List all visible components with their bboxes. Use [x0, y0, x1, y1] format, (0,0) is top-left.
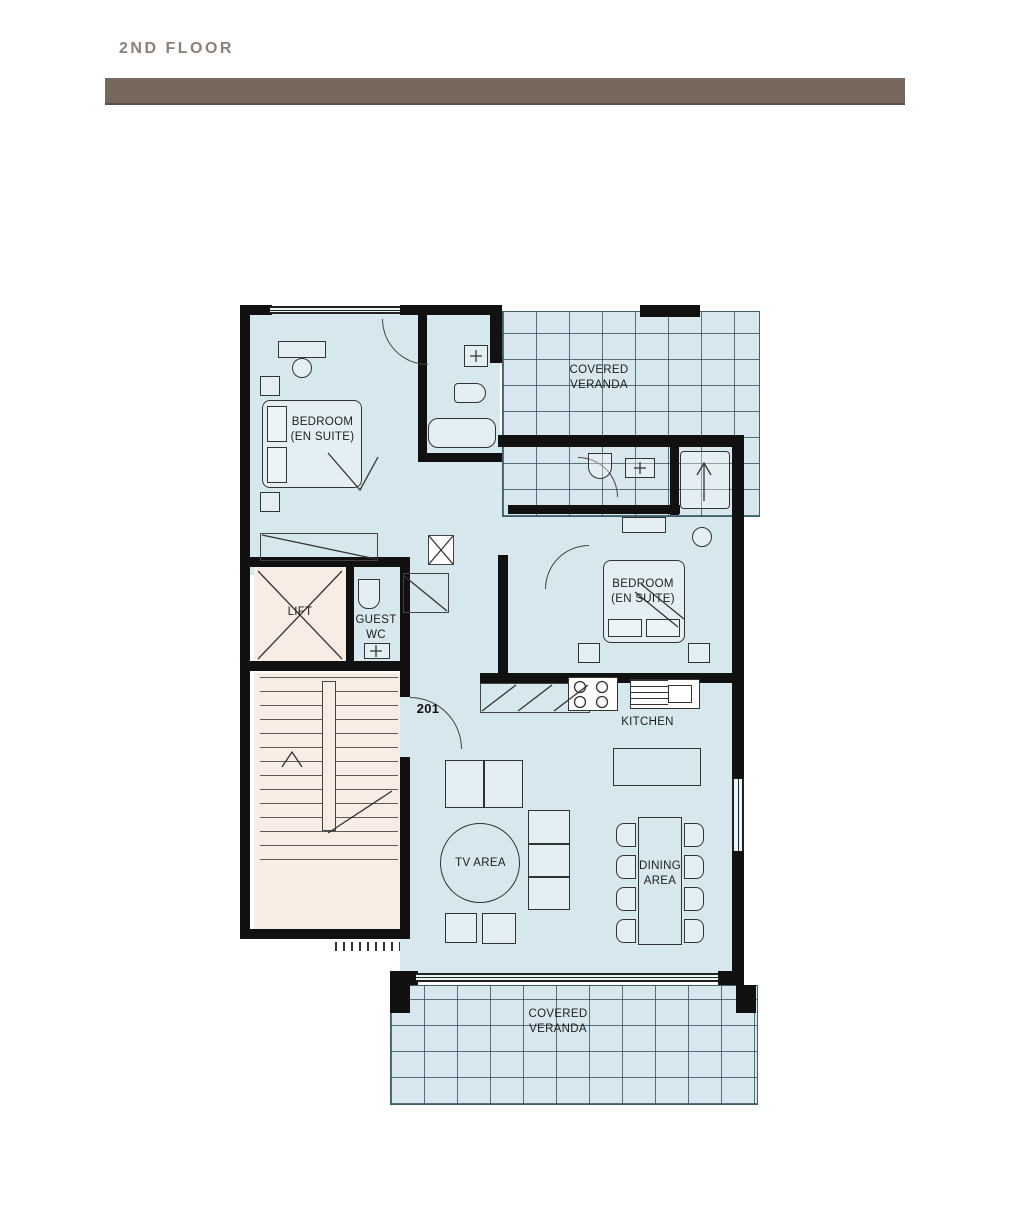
dining-chair-r1	[684, 823, 704, 847]
label-dining-line1: DINING	[628, 859, 692, 874]
closet-hall	[403, 573, 449, 613]
label-bedroom1-line2: (EN SUITE)	[265, 430, 380, 445]
wall-veranda-top-block	[640, 305, 700, 317]
wall-outer-right-mid	[732, 683, 744, 779]
nightstand-bedroom1-b	[260, 492, 280, 512]
label-veranda-top-line1: COVERED	[540, 363, 658, 378]
toilet-bath2	[588, 453, 612, 479]
nightstand-bedroom2-a	[578, 643, 600, 663]
page: 2ND FLOOR	[0, 0, 1012, 1231]
label-guest-wc: GUEST WC	[340, 613, 412, 643]
nightstand-bedroom2-b	[688, 643, 710, 663]
sink-bath2	[625, 458, 655, 478]
stair-dimension-hatch	[335, 942, 400, 951]
sink-guest-wc	[364, 643, 390, 659]
ottoman-b	[482, 913, 516, 944]
wall-stair-bottom	[240, 929, 410, 939]
label-bedroom1: BEDROOM (EN SUITE)	[265, 415, 380, 445]
dining-chair-l4	[616, 919, 636, 943]
toilet-guest-wc	[358, 579, 380, 609]
wall-hall-bedroom2-divider	[498, 555, 508, 683]
wall-lift-bottom	[250, 661, 400, 671]
label-lift: LIFT	[270, 605, 330, 620]
wall-bath1-veranda-column	[490, 313, 502, 363]
label-veranda-top: COVERED VERANDA	[540, 363, 658, 393]
pillow-bedroom2-b	[646, 619, 680, 637]
header-divider-bar	[105, 78, 905, 105]
sofa-cushion-line-a	[529, 843, 569, 845]
wardrobe-bedroom1	[260, 533, 378, 561]
label-unit-number: 201	[406, 701, 450, 718]
window-top	[270, 306, 402, 314]
wall-outer-top	[240, 305, 272, 315]
desk-bedroom1	[278, 341, 326, 358]
shower-bath2	[680, 451, 730, 509]
wall-bath2-bottom	[508, 505, 680, 514]
stove	[568, 677, 618, 711]
wall-living-bottom-left	[390, 971, 418, 985]
chair-bedroom2	[692, 527, 712, 547]
label-kitchen: KITCHEN	[600, 715, 695, 730]
wall-bath1-bottom	[418, 453, 502, 462]
wall-shower-divider	[670, 445, 679, 515]
nightstand-bedroom1-a	[260, 376, 280, 396]
wall-veranda-bottom-right-pier	[736, 985, 756, 1013]
wall-outer-right-upper	[732, 435, 744, 685]
chair-bedroom1	[292, 358, 312, 378]
kitchen-sink-basin	[668, 685, 692, 703]
sofa-two-seat-cushion-line	[483, 761, 485, 807]
label-guest-wc-line2: WC	[340, 628, 412, 643]
floor-plan: BEDROOM (EN SUITE) BEDROOM (EN SUITE) CO…	[240, 305, 762, 1105]
stair-divider	[322, 681, 336, 831]
dining-chair-r4	[684, 919, 704, 943]
label-veranda-top-line2: VERANDA	[540, 378, 658, 393]
label-tv-area: TV AREA	[438, 856, 523, 871]
label-veranda-bottom-line1: COVERED	[498, 1007, 618, 1022]
toilet-bath1	[454, 383, 486, 403]
label-veranda-bottom: COVERED VERANDA	[498, 1007, 618, 1037]
page-title: 2ND FLOOR	[119, 40, 234, 58]
label-veranda-bottom-line2: VERANDA	[498, 1022, 618, 1037]
label-dining-area: DINING AREA	[628, 859, 692, 889]
label-dining-line2: AREA	[628, 874, 692, 889]
bathtub-bath1	[428, 418, 496, 448]
wall-outer-right-lower	[732, 851, 744, 985]
wall-outer-top-2	[400, 305, 502, 315]
window-living-south	[416, 973, 720, 982]
wall-stair-right-lower	[400, 757, 410, 939]
desk-bedroom2	[622, 517, 666, 533]
sink-bath1	[464, 345, 488, 367]
label-bedroom2-line1: BEDROOM	[588, 577, 698, 592]
label-bedroom1-line1: BEDROOM	[265, 415, 380, 430]
veranda-bottom-floor	[390, 985, 758, 1105]
dining-chair-l1	[616, 823, 636, 847]
ottoman-a	[445, 913, 477, 943]
wall-bedroom2-top	[498, 435, 744, 447]
sofa-cushion-line-b	[529, 876, 569, 878]
label-guest-wc-line1: GUEST	[340, 613, 412, 628]
wall-outer-left	[240, 305, 250, 939]
pillow-bedroom2-a	[608, 619, 642, 637]
sofa-three-seat	[528, 810, 570, 910]
dining-chair-l3	[616, 887, 636, 911]
pillow-bedroom1-b	[267, 447, 287, 483]
label-bedroom2: BEDROOM (EN SUITE)	[588, 577, 698, 607]
dining-chair-r3	[684, 887, 704, 911]
duct-shaft	[428, 535, 454, 565]
window-living-east	[732, 779, 744, 851]
wall-veranda-bottom-left-pier	[390, 985, 410, 1013]
sideboard	[613, 748, 701, 786]
label-bedroom2-line2: (EN SUITE)	[588, 592, 698, 607]
